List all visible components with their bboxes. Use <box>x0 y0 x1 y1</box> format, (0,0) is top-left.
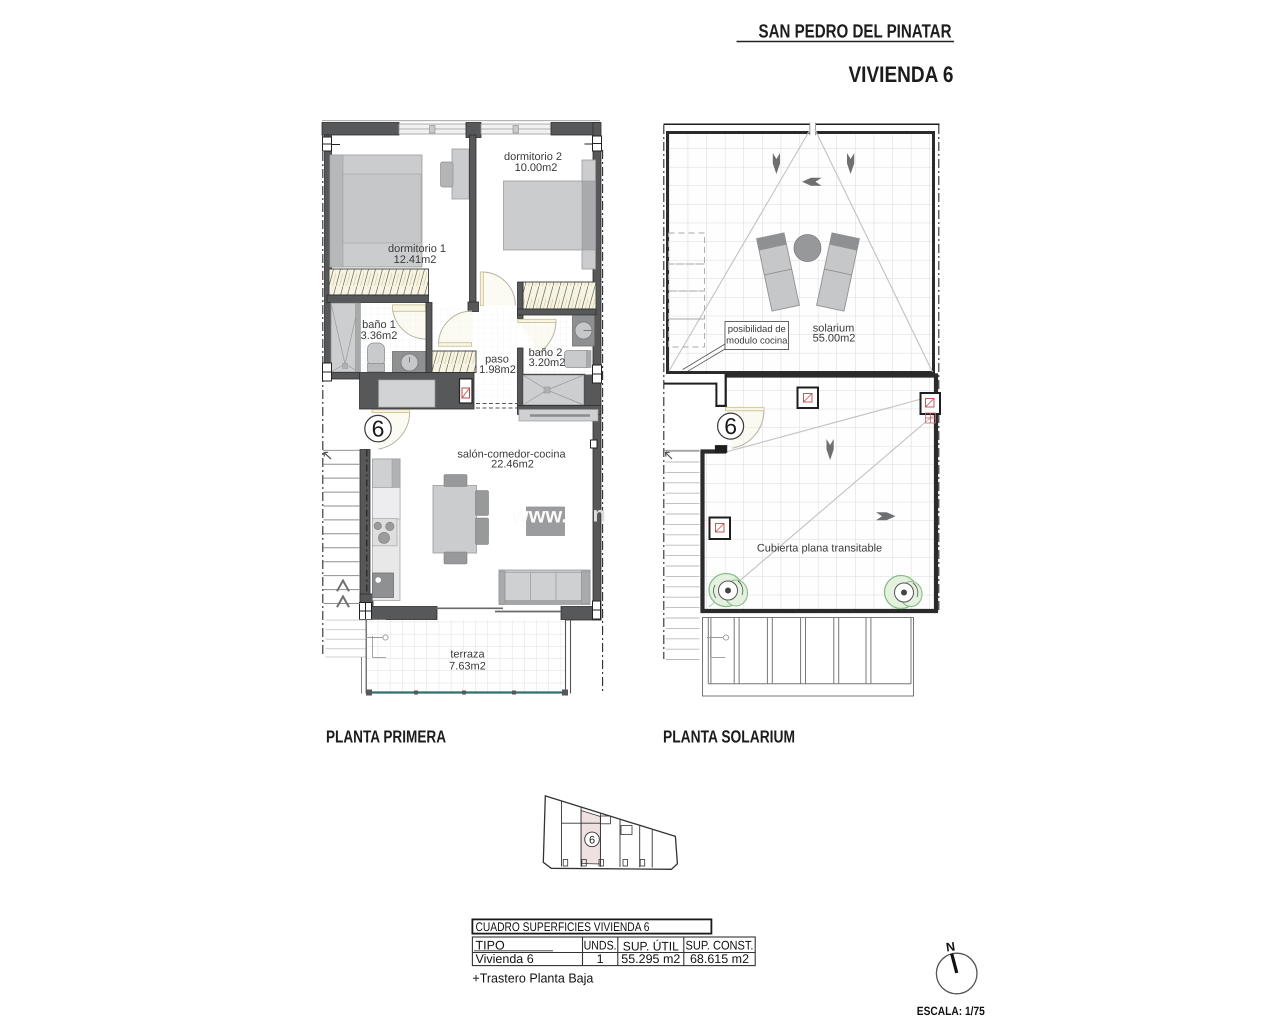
svg-text:modulo cocina: modulo cocina <box>726 336 788 347</box>
svg-text:7.63m2: 7.63m2 <box>449 661 486 673</box>
svg-text:Cubierta plana transitable: Cubierta plana transitable <box>757 543 882 555</box>
svg-text:n: n <box>593 503 606 527</box>
svg-text:UNDS.: UNDS. <box>584 939 617 953</box>
svg-text:1.98m2: 1.98m2 <box>479 364 516 376</box>
svg-text:posibilidad de: posibilidad de <box>728 324 786 335</box>
svg-text:55.295 m2: 55.295 m2 <box>621 952 680 966</box>
svg-text:Vivienda 6: Vivienda 6 <box>476 952 534 966</box>
svg-text:ESCALA: 1/75: ESCALA: 1/75 <box>917 1004 985 1018</box>
svg-text:1: 1 <box>597 952 604 966</box>
svg-text:12.41m2: 12.41m2 <box>394 254 437 266</box>
svg-text:SUP. CONST.: SUP. CONST. <box>686 939 754 953</box>
svg-text:+Trastero Planta Baja: +Trastero Planta Baja <box>472 970 594 985</box>
svg-text:55.00m2: 55.00m2 <box>813 333 856 345</box>
svg-text:6: 6 <box>589 834 595 846</box>
svg-text:22.46m2: 22.46m2 <box>491 459 534 471</box>
svg-text:68.615 m2: 68.615 m2 <box>690 952 749 966</box>
svg-text:6: 6 <box>724 413 737 439</box>
svg-text:terraza: terraza <box>450 649 485 661</box>
svg-text:10.00m2: 10.00m2 <box>515 162 558 174</box>
svg-text:3.20m2: 3.20m2 <box>529 357 566 369</box>
svg-text:www.: www. <box>511 504 567 528</box>
svg-text:3.36m2: 3.36m2 <box>361 330 398 342</box>
svg-text:CUADRO SUPERFICIES VIVIENDA 6: CUADRO SUPERFICIES VIVIENDA 6 <box>476 920 650 934</box>
svg-text:VIVIENDA 6: VIVIENDA 6 <box>849 62 954 87</box>
svg-text:6: 6 <box>372 416 385 442</box>
svg-text:PLANTA PRIMERA: PLANTA PRIMERA <box>326 727 446 747</box>
svg-text:N: N <box>945 939 956 954</box>
svg-text:PLANTA SOLARIUM: PLANTA SOLARIUM <box>663 727 795 747</box>
svg-text:SAN PEDRO DEL PINATAR: SAN PEDRO DEL PINATAR <box>759 22 952 43</box>
